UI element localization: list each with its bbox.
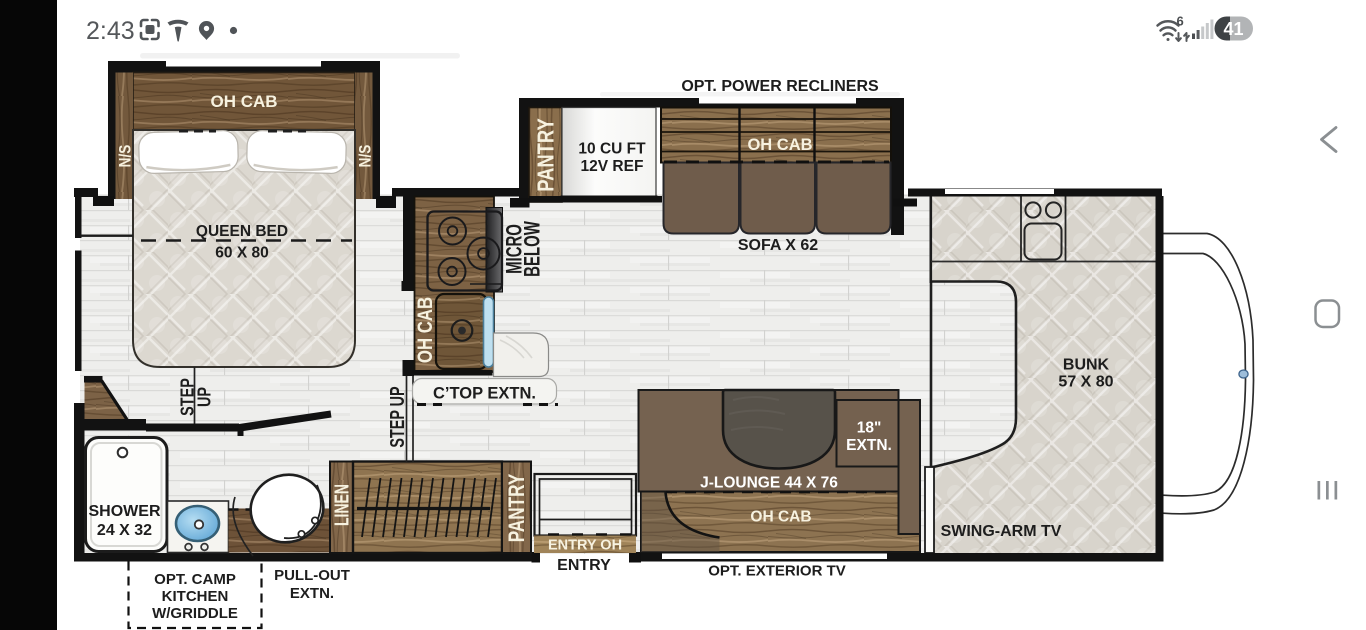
svg-text:OH CAB: OH CAB — [414, 297, 437, 363]
svg-text:2:43: 2:43 — [86, 17, 135, 45]
svg-text:UP: UP — [194, 387, 215, 407]
svg-text:BUNK: BUNK — [1063, 357, 1110, 374]
svg-text:C’TOP EXTN.: C’TOP EXTN. — [433, 385, 536, 403]
svg-text:SHOWER: SHOWER — [89, 503, 161, 520]
svg-text:W/GRIDDLE: W/GRIDDLE — [152, 605, 238, 622]
svg-text:41: 41 — [1223, 19, 1243, 39]
svg-text:OH CAB: OH CAB — [210, 92, 277, 111]
svg-text:PANTRY: PANTRY — [505, 474, 530, 543]
svg-text:ENTRY: ENTRY — [557, 557, 611, 574]
svg-text:6: 6 — [1177, 14, 1184, 29]
svg-text:18": 18" — [857, 420, 882, 437]
svg-text:SOFA X 62: SOFA X 62 — [738, 237, 818, 254]
svg-text:12V REF: 12V REF — [581, 158, 644, 175]
svg-text:N/S: N/S — [356, 145, 375, 168]
svg-text:60 X 80: 60 X 80 — [215, 245, 268, 262]
svg-text:OPT. CAMP: OPT. CAMP — [154, 571, 236, 588]
svg-text:KITCHEN: KITCHEN — [162, 588, 229, 605]
svg-text:EXTN.: EXTN. — [290, 585, 334, 602]
svg-text:OPT. POWER RECLINERS: OPT. POWER RECLINERS — [681, 78, 879, 95]
svg-text:LINEN: LINEN — [330, 484, 353, 526]
svg-text:PULL-OUT: PULL-OUT — [274, 567, 350, 584]
svg-text:J-LOUNGE 44 X 76: J-LOUNGE 44 X 76 — [700, 475, 838, 492]
svg-text:EXTN.: EXTN. — [846, 437, 892, 454]
svg-text:57 X 80: 57 X 80 — [1058, 374, 1113, 391]
svg-text:PANTRY: PANTRY — [534, 118, 559, 192]
svg-text:STEP UP: STEP UP — [386, 386, 409, 448]
svg-text:SWING-ARM TV: SWING-ARM TV — [941, 523, 1062, 540]
svg-text:OH CAB: OH CAB — [750, 509, 811, 526]
svg-text:OPT. EXTERIOR TV: OPT. EXTERIOR TV — [708, 563, 846, 580]
svg-text:QUEEN BED: QUEEN BED — [196, 223, 288, 240]
svg-text:BELOW: BELOW — [520, 221, 545, 277]
svg-text:24 X 32: 24 X 32 — [97, 522, 152, 539]
svg-text:10 CU FT: 10 CU FT — [578, 141, 646, 158]
svg-text:ENTRY OH: ENTRY OH — [548, 538, 622, 554]
svg-text:OH CAB: OH CAB — [747, 136, 812, 154]
